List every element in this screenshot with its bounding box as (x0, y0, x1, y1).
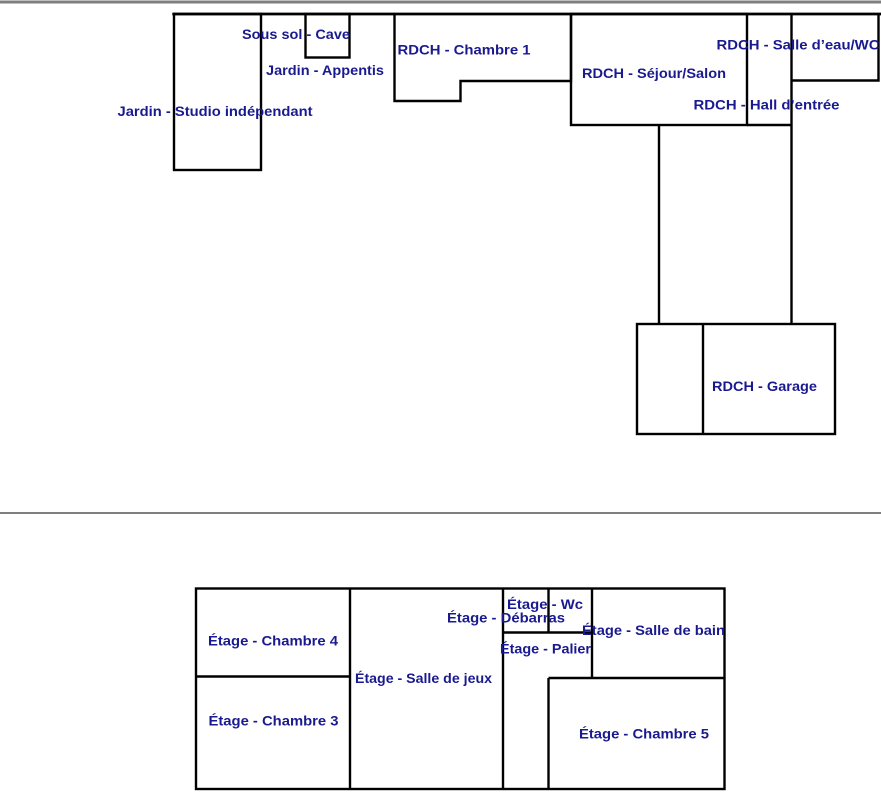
svg-text:Étage - Chambre 4: Étage - Chambre 4 (208, 633, 338, 649)
svg-text:Étage - Chambre 5: Étage - Chambre 5 (579, 726, 709, 742)
svg-text:Jardin - Studio indépendant: Jardin - Studio indépendant (118, 103, 313, 119)
svg-text:RDCH - Séjour/Salon: RDCH - Séjour/Salon (582, 65, 726, 81)
svg-text:Étage - Salle de jeux: Étage - Salle de jeux (355, 670, 492, 686)
svg-text:RDCH - Salle d’eau/WC: RDCH - Salle d’eau/WC (717, 37, 880, 53)
svg-text:Étage - Chambre 3: Étage - Chambre 3 (209, 713, 339, 729)
svg-text:Étage - Palier: Étage - Palier (500, 641, 592, 657)
svg-text:Jardin - Appentis: Jardin - Appentis (266, 62, 384, 78)
svg-text:RDCH - Garage: RDCH - Garage (712, 378, 817, 394)
svg-text:Sous sol - Cave: Sous sol - Cave (242, 26, 350, 42)
svg-text:RDCH - Hall d’entrée: RDCH - Hall d’entrée (694, 97, 840, 113)
svg-text:RDCH - Chambre 1: RDCH - Chambre 1 (398, 41, 531, 57)
svg-text:Étage - Salle de bain: Étage - Salle de bain (582, 622, 725, 638)
svg-text:Étage - Débarras: Étage - Débarras (447, 610, 565, 626)
